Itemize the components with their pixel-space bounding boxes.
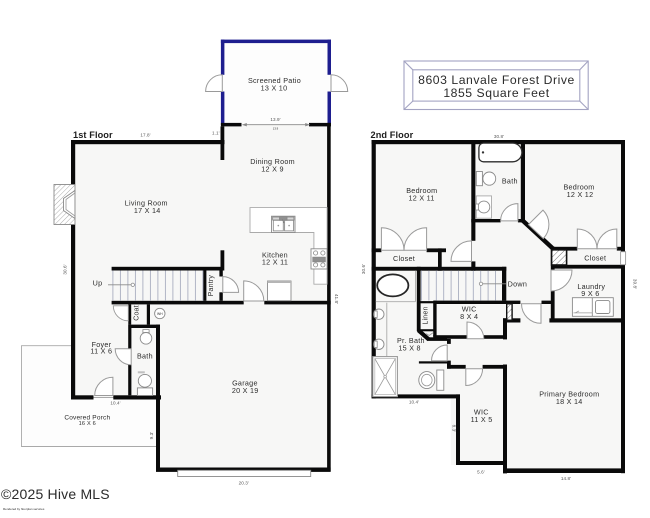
svg-text:Linen: Linen <box>423 306 430 324</box>
svg-text:WH: WH <box>157 312 163 316</box>
svg-text:30.8': 30.8' <box>494 134 504 139</box>
svg-text:18 X 14: 18 X 14 <box>556 397 583 406</box>
svg-text:41.8': 41.8' <box>334 294 339 304</box>
svg-text:14.8': 14.8' <box>561 476 571 481</box>
svg-text:11 X 6: 11 X 6 <box>90 346 112 355</box>
svg-text:20 X 19: 20 X 19 <box>232 386 259 395</box>
svg-text:20.3': 20.3' <box>239 481 249 486</box>
svg-text:12 X 9: 12 X 9 <box>261 164 283 173</box>
svg-text:8 X 4: 8 X 4 <box>460 312 478 321</box>
svg-text:Bath: Bath <box>137 352 153 361</box>
svg-text:Pantry: Pantry <box>208 275 215 297</box>
svg-text:13.9: 13.9 <box>273 127 279 131</box>
svg-text:11 X 5: 11 X 5 <box>471 415 493 424</box>
svg-text:13.9': 13.9' <box>270 117 280 122</box>
svg-text:12 X 11: 12 X 11 <box>408 193 434 202</box>
svg-text:Coat: Coat <box>134 305 141 321</box>
svg-text:1855 Square Feet: 1855 Square Feet <box>443 86 549 100</box>
svg-text:9.3': 9.3' <box>149 432 154 440</box>
svg-text:30.6': 30.6' <box>62 264 67 274</box>
svg-text:8603 Lanvale Forest Drive: 8603 Lanvale Forest Drive <box>418 73 575 87</box>
svg-text:17.8': 17.8' <box>140 132 150 137</box>
svg-text:10.4': 10.4' <box>409 399 419 404</box>
svg-text:16 X 6: 16 X 6 <box>79 421 96 427</box>
svg-text:9 X 6: 9 X 6 <box>581 289 599 298</box>
svg-text:2nd Floor: 2nd Floor <box>371 130 414 140</box>
svg-text:8.3': 8.3' <box>451 425 456 433</box>
svg-text:5.6': 5.6' <box>477 469 485 474</box>
svg-text:Closet: Closet <box>393 254 415 263</box>
svg-text:17 X 14: 17 X 14 <box>134 206 161 215</box>
svg-text:Closet: Closet <box>584 253 606 262</box>
svg-text:30.6': 30.6' <box>361 264 366 274</box>
svg-text:12 X 12: 12 X 12 <box>567 190 594 199</box>
svg-text:©2025 Hive MLS: ©2025 Hive MLS <box>1 486 110 502</box>
svg-text:12 X 11: 12 X 11 <box>262 258 288 267</box>
svg-text:1st Floor: 1st Floor <box>73 130 113 140</box>
svg-text:13 X 10: 13 X 10 <box>261 83 288 92</box>
svg-text:1.1': 1.1' <box>212 131 220 136</box>
svg-text:Up: Up <box>93 278 103 287</box>
svg-text:Rendered by floorplan services: Rendered by floorplan services <box>3 507 45 511</box>
svg-text:39.8': 39.8' <box>633 279 638 289</box>
svg-text:Bath: Bath <box>502 176 518 185</box>
svg-text:Down: Down <box>508 279 528 288</box>
svg-text:15 X 8: 15 X 8 <box>398 344 420 353</box>
svg-text:10.4': 10.4' <box>110 400 120 405</box>
